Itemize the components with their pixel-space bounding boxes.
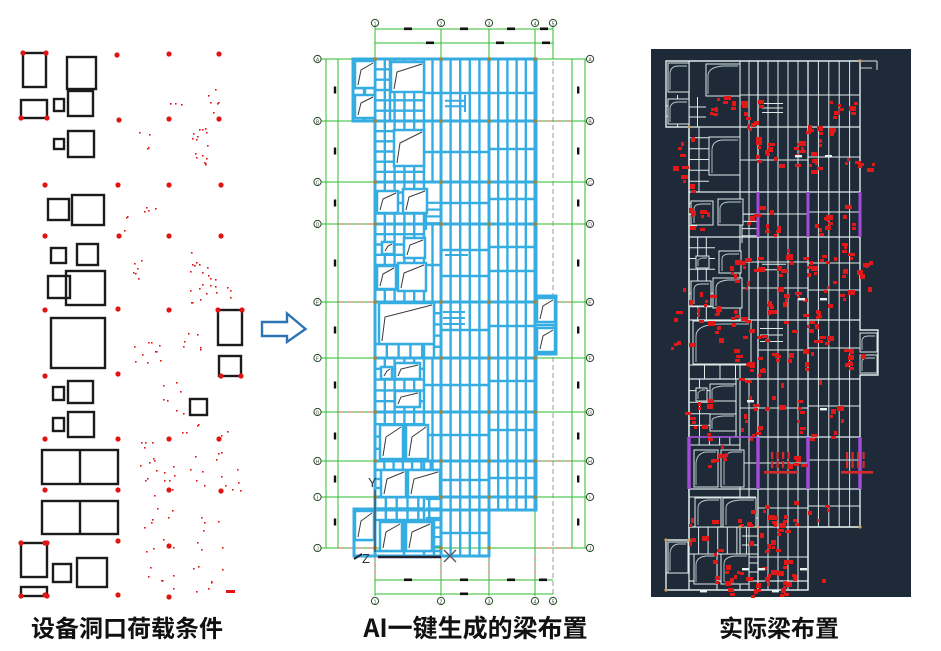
svg-text:C: C: [316, 181, 320, 187]
svg-text:4: 4: [534, 22, 537, 28]
svg-text:3: 3: [488, 600, 491, 606]
svg-text:I: I: [317, 496, 318, 502]
svg-text:Y: Y: [368, 475, 377, 490]
svg-text:5: 5: [552, 22, 555, 28]
svg-text:G: G: [588, 411, 592, 417]
svg-text:F: F: [588, 357, 591, 363]
svg-text:1: 1: [374, 600, 377, 606]
svg-text:3: 3: [488, 22, 491, 28]
svg-text:1: 1: [374, 22, 377, 28]
svg-text:4: 4: [534, 600, 537, 606]
svg-text:H: H: [316, 460, 320, 466]
svg-text:2: 2: [440, 22, 443, 28]
svg-text:2: 2: [440, 600, 443, 606]
svg-text:D: D: [588, 223, 592, 229]
svg-text:F: F: [316, 357, 319, 363]
svg-text:Z: Z: [362, 551, 370, 566]
svg-text:C: C: [588, 181, 592, 187]
svg-text:D: D: [316, 223, 320, 229]
svg-text:G: G: [316, 411, 320, 417]
svg-text:5: 5: [552, 600, 555, 606]
svg-text:I: I: [589, 496, 590, 502]
svg-text:H: H: [588, 460, 592, 466]
